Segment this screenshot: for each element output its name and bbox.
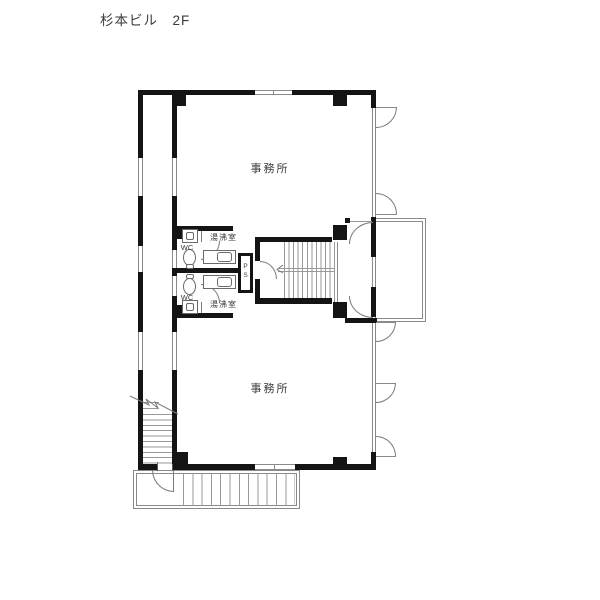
window-bottom <box>255 464 295 470</box>
lobby-lower-office-door-arc <box>349 296 373 318</box>
window-left-inner-4 <box>172 332 177 370</box>
stair-treads <box>284 242 335 298</box>
column-office1-left <box>172 93 186 106</box>
casement-5-arc <box>376 436 396 456</box>
kitchenette-upper-label: 湯沸室 <box>210 232 237 243</box>
window-left-inner-1 <box>172 158 177 196</box>
side-stair-short-tread-2 <box>143 408 159 409</box>
bottom-external-stair-treads <box>183 473 295 506</box>
casement-2-leaf <box>376 214 397 215</box>
left-outer-wall-2 <box>138 196 143 246</box>
kitchenette-lower-label: 湯沸室 <box>210 299 237 310</box>
page-title: 杉本ビル 2F <box>100 9 190 29</box>
right-wall-window-band <box>372 95 376 465</box>
wc-upper-door-leaf <box>201 231 202 242</box>
floor-plan-canvas: 杉本ビル 2F <box>0 0 600 600</box>
kitchen-sink-lower <box>217 277 232 287</box>
office-lower-label: 事務所 <box>200 380 340 396</box>
stairwell-left-wall-upper <box>255 237 260 261</box>
window-top-mullion <box>273 90 274 95</box>
casement-5-leaf <box>376 456 396 457</box>
wc-upper-label: WC <box>174 243 200 252</box>
casement-3-arc <box>376 322 396 342</box>
toilet-upper-tank <box>186 264 194 269</box>
top-wall-left-segment <box>140 90 255 95</box>
handsink-upper-basin <box>186 232 194 240</box>
column-bottom-wall <box>333 457 347 465</box>
stair-landing-line-2 <box>278 271 334 272</box>
left-outer-wall-3 <box>138 272 143 332</box>
bottom-wall-left-segment <box>173 464 255 470</box>
balcony-landing-door-leaf <box>173 470 174 492</box>
left-outer-wall-1 <box>138 90 143 158</box>
window-left-outer-3 <box>138 332 143 370</box>
window-left-outer-2 <box>138 246 143 272</box>
stairwell-bottom-wall <box>255 298 332 304</box>
lobby-bottom-wall <box>345 318 377 323</box>
right-wall-top-corner <box>371 90 376 108</box>
casement-1-arc <box>376 107 397 128</box>
wc-lower-door-leaf <box>201 302 202 313</box>
side-stair-short-tread-1 <box>143 402 159 403</box>
casement-4-arc <box>376 383 396 403</box>
office-upper-label: 事務所 <box>200 160 340 176</box>
column-stair-bottom-right <box>333 302 347 318</box>
pipe-shaft-box: P S <box>238 253 253 293</box>
column-bottom-left-corner <box>172 452 188 464</box>
right-balcony-inner <box>376 221 423 319</box>
stair-landing-line-1 <box>278 268 334 269</box>
side-stair-treads <box>143 414 172 468</box>
left-inner-wall-2 <box>172 196 177 250</box>
wc-lower-label: WC <box>174 293 200 302</box>
window-bottom-mullion <box>274 464 275 470</box>
window-left-outer-1 <box>138 158 143 196</box>
kitchen-sink-upper <box>217 252 232 262</box>
handsink-lower-basin <box>186 303 194 311</box>
pipe-shaft-label: P S <box>241 256 250 280</box>
column-stair-top-right <box>333 225 347 240</box>
left-inner-wall-5 <box>172 370 177 464</box>
window-left-inner-2 <box>172 250 177 270</box>
casement-2-arc <box>376 193 397 214</box>
core-middle-wall <box>172 268 242 273</box>
lobby-upper-office-door-arc <box>349 222 373 244</box>
stair-landing-door-arc <box>260 261 277 279</box>
column-office1-right <box>333 93 347 106</box>
